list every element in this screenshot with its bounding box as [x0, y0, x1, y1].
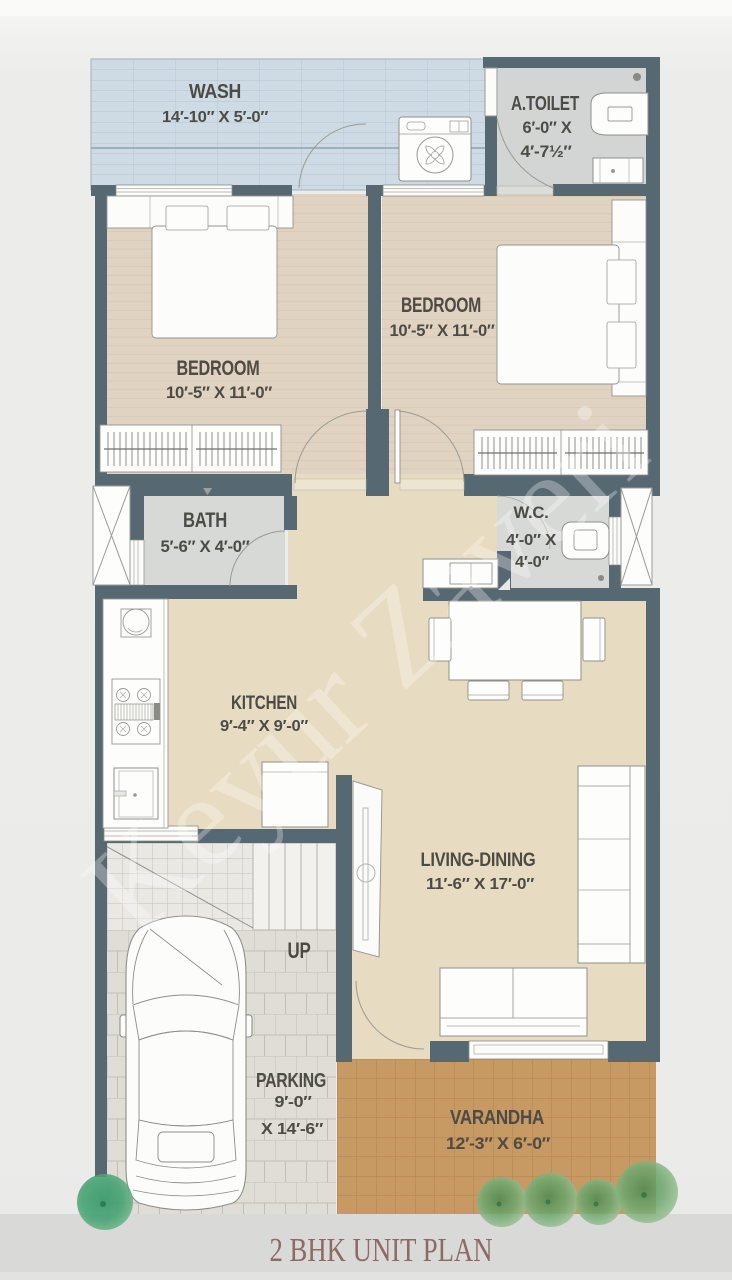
svg-text:VARANDHA: VARANDHA	[450, 1107, 544, 1129]
svg-text:9′-4″ X 9′-0″: 9′-4″ X 9′-0″	[220, 718, 309, 735]
svg-text:9′-0″: 9′-0″	[275, 1094, 313, 1111]
svg-text:WASH: WASH	[189, 81, 241, 103]
svg-text:BEDROOM: BEDROOM	[177, 357, 260, 380]
svg-text:10′-5″ X 11′-0″: 10′-5″ X 11′-0″	[390, 322, 495, 340]
svg-text:2 BHK UNIT PLAN: 2 BHK UNIT PLAN	[270, 1232, 493, 1269]
svg-text:4′-0″ X: 4′-0″ X	[506, 532, 557, 549]
svg-text:X 14′-6″: X 14′-6″	[261, 1121, 324, 1138]
svg-text:12′-3″ X 6′-0″: 12′-3″ X 6′-0″	[446, 1135, 550, 1153]
svg-text:10′-5″ X 11′-0″: 10′-5″ X 11′-0″	[166, 384, 272, 402]
svg-text:4′-0″: 4′-0″	[515, 554, 550, 571]
svg-text:14′-10″ X 5′-0″: 14′-10″ X 5′-0″	[162, 109, 269, 126]
svg-text:4′-7½″: 4′-7½″	[521, 143, 572, 161]
svg-text:A.TOILET: A.TOILET	[511, 93, 579, 115]
svg-text:BATH: BATH	[183, 509, 227, 532]
svg-text:LIVING-DINING: LIVING-DINING	[421, 850, 536, 871]
svg-text:UP: UP	[288, 938, 311, 963]
svg-text:BEDROOM: BEDROOM	[401, 294, 481, 317]
svg-text:KITCHEN: KITCHEN	[231, 693, 297, 714]
svg-text:11′-6″ X 17′-0″: 11′-6″ X 17′-0″	[426, 876, 535, 893]
svg-text:W.C.: W.C.	[514, 503, 549, 522]
svg-text:5′-6″ X 4′-0″: 5′-6″ X 4′-0″	[161, 538, 250, 556]
svg-text:PARKING: PARKING	[256, 1070, 326, 1092]
svg-text:6′-0″ X: 6′-0″ X	[523, 119, 572, 137]
